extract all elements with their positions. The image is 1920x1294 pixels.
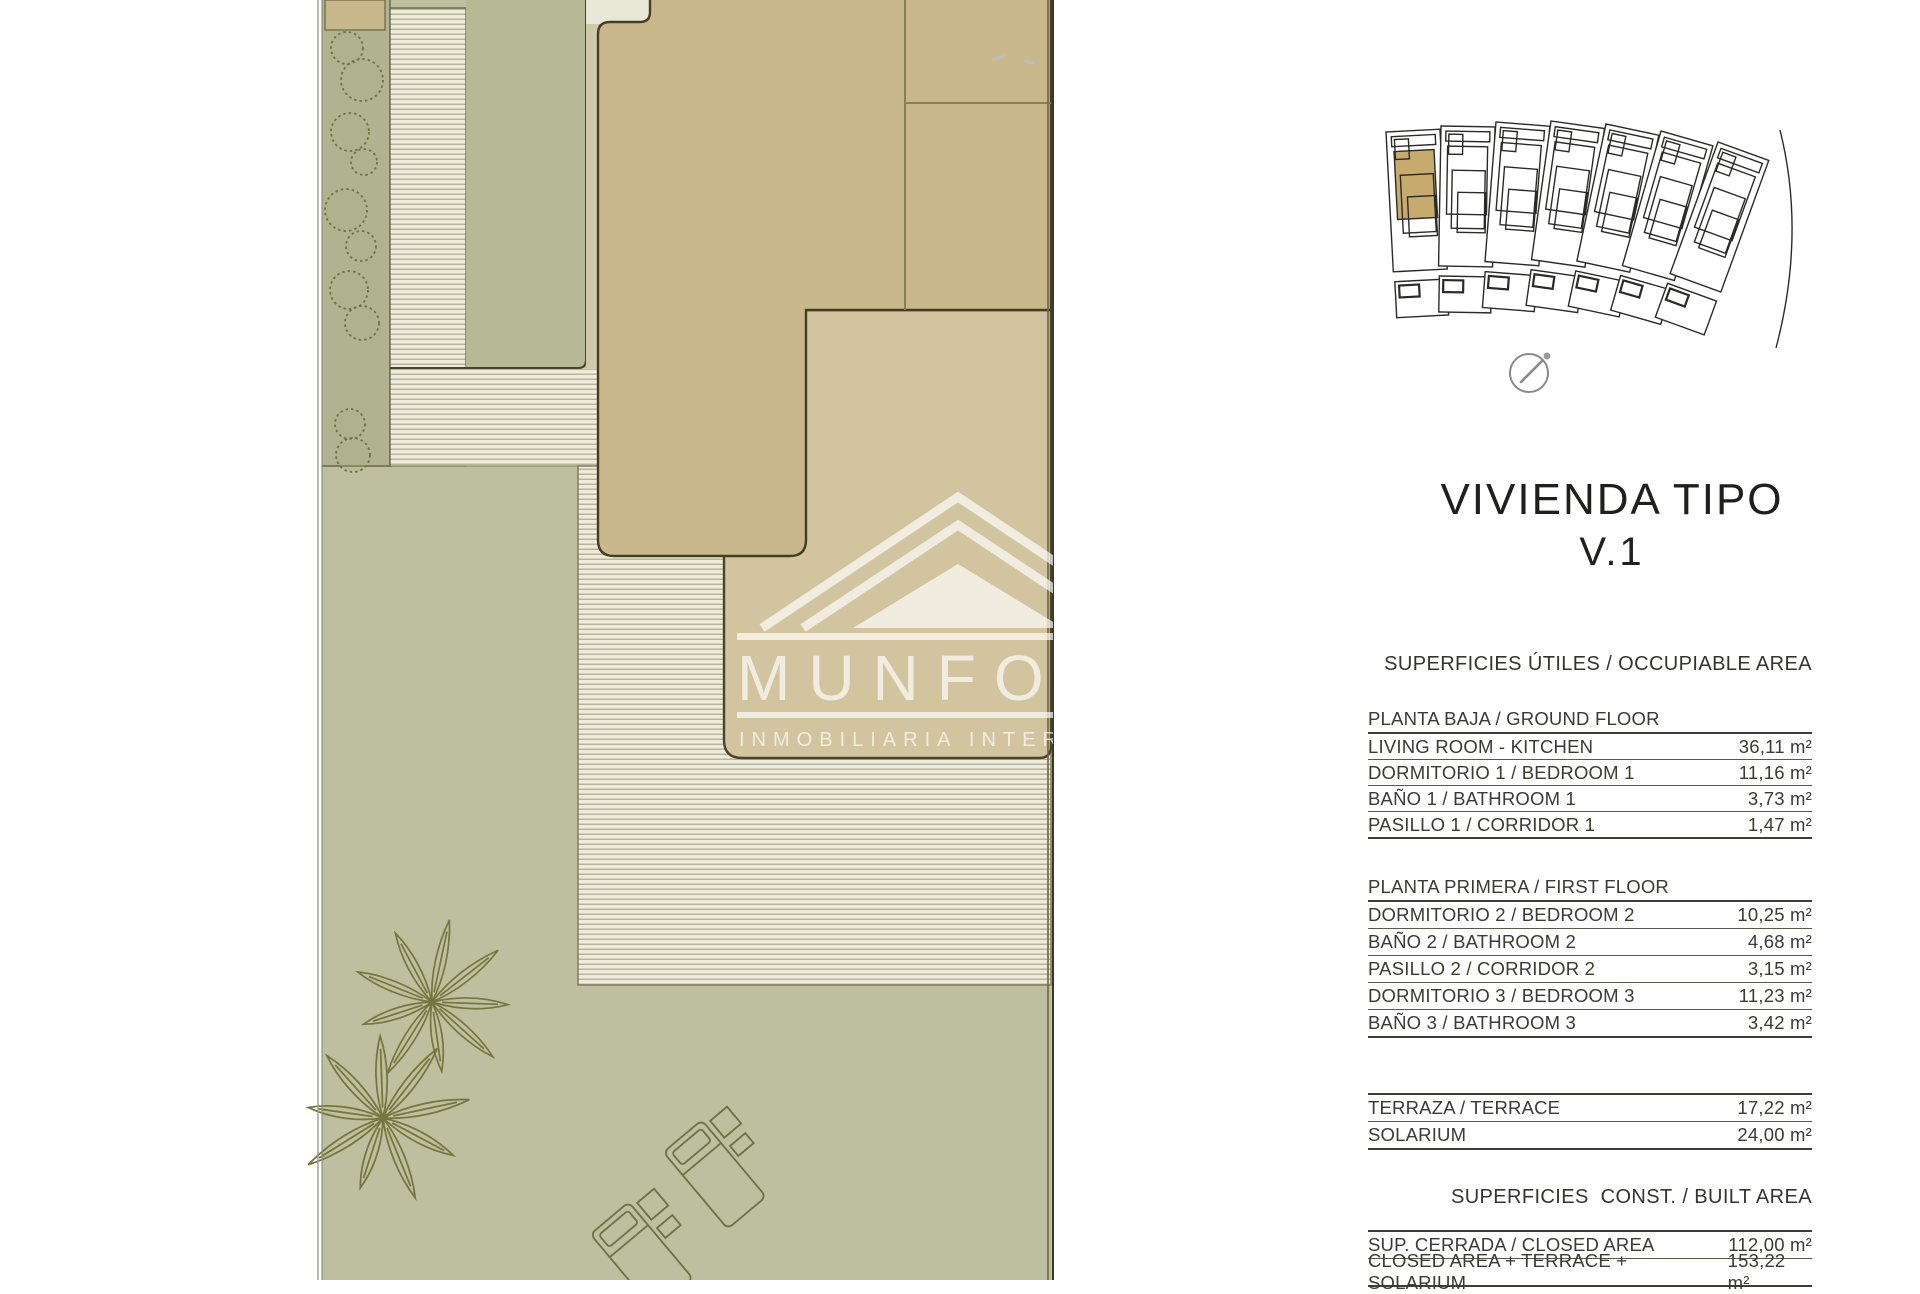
page-title: VIVIENDA TIPO — [1412, 476, 1812, 524]
watermark-brand: MUNFO — [737, 642, 1062, 714]
area-value: 153,22 m² — [1728, 1250, 1812, 1294]
room-label: TERRAZA / TERRACE — [1368, 1097, 1560, 1119]
room-label: BAÑO 3 / BATHROOM 3 — [1368, 1012, 1576, 1034]
sheet-title-block: VIVIENDA TIPO V.1 — [1412, 476, 1812, 575]
table-row: DORMITORIO 3 / BEDROOM 311,23 m² — [1368, 983, 1812, 1010]
room-label: DORMITORIO 2 / BEDROOM 2 — [1368, 904, 1635, 926]
shrub-strip — [322, 0, 390, 472]
compass-icon — [1495, 336, 1575, 398]
room-label: BAÑO 1 / BATHROOM 1 — [1368, 788, 1576, 810]
table-header: PLANTA PRIMERA / FIRST FLOOR — [1368, 874, 1812, 902]
room-label: PASILLO 2 / CORRIDOR 2 — [1368, 958, 1595, 980]
table-row: BAÑO 1 / BATHROOM 13,73 m² — [1368, 786, 1812, 812]
occupiable-area-heading: SUPERFICIES ÚTILES / OCCUPIABLE AREA — [1368, 653, 1812, 676]
table-body: TERRAZA / TERRACE17,22 m²SOLARIUM24,00 m… — [1368, 1095, 1812, 1150]
area-value: 3,73 m² — [1748, 788, 1812, 810]
area-value: 4,68 m² — [1748, 931, 1812, 953]
room-label: BAÑO 2 / BATHROOM 2 — [1368, 931, 1576, 953]
room-label: DORMITORIO 1 / BEDROOM 1 — [1368, 762, 1635, 784]
table-row: PASILLO 1 / CORRIDOR 11,47 m² — [1368, 812, 1812, 839]
watermark-subtitle: INMOBILIARIA INTERNA — [739, 729, 1106, 751]
table-row: SOLARIUM24,00 m² — [1368, 1122, 1812, 1150]
table-body: SUP. CERRADA / CLOSED AREA112,00 m²CLOSE… — [1368, 1232, 1812, 1287]
table-row: PASILLO 2 / CORRIDOR 23,15 m² — [1368, 956, 1812, 983]
table-row: DORMITORIO 2 / BEDROOM 210,25 m² — [1368, 902, 1812, 929]
unit-type-label: V.1 — [1412, 530, 1812, 575]
key-plan — [1380, 106, 1800, 352]
table-row: BAÑO 2 / BATHROOM 24,68 m² — [1368, 929, 1812, 956]
area-value: 3,42 m² — [1748, 1012, 1812, 1034]
area-value: 11,23 m² — [1739, 985, 1812, 1007]
area-value: 17,22 m² — [1737, 1097, 1812, 1119]
table-row: CLOSED AREA + TERRACE + SOLARIUM153,22 m… — [1368, 1259, 1812, 1287]
table-body: DORMITORIO 2 / BEDROOM 210,25 m²BAÑO 2 /… — [1368, 902, 1812, 1038]
table-header: PLANTA BAJA / GROUND FLOOR — [1368, 706, 1812, 734]
built-areas-table: SUP. CERRADA / CLOSED AREA112,00 m²CLOSE… — [1368, 1230, 1812, 1287]
room-label: DORMITORIO 3 / BEDROOM 3 — [1368, 985, 1635, 1007]
room-label: SOLARIUM — [1368, 1124, 1466, 1146]
table-row: LIVING ROOM - KITCHEN36,11 m² — [1368, 734, 1812, 760]
room-label: CLOSED AREA + TERRACE + SOLARIUM — [1368, 1250, 1728, 1294]
built-area-heading: SUPERFICIES CONST. / BUILT AREA — [1368, 1186, 1812, 1209]
table-body: LIVING ROOM - KITCHEN36,11 m²DORMITORIO … — [1368, 734, 1812, 839]
table-row: BAÑO 3 / BATHROOM 33,42 m² — [1368, 1010, 1812, 1038]
table-row: TERRAZA / TERRACE17,22 m² — [1368, 1095, 1812, 1122]
area-value: 24,00 m² — [1737, 1124, 1812, 1146]
area-value: 36,11 m² — [1739, 736, 1812, 758]
room-label: LIVING ROOM - KITCHEN — [1368, 736, 1593, 758]
area-value: 11,16 m² — [1739, 762, 1812, 784]
area-value: 10,25 m² — [1737, 904, 1812, 926]
room-label: PASILLO 1 / CORRIDOR 1 — [1368, 814, 1595, 836]
area-value: 1,47 m² — [1748, 814, 1812, 836]
area-value: 3,15 m² — [1748, 958, 1812, 980]
table-row: DORMITORIO 1 / BEDROOM 111,16 m² — [1368, 760, 1812, 786]
outdoor-areas-table: TERRAZA / TERRACE17,22 m²SOLARIUM24,00 m… — [1368, 1093, 1812, 1150]
ground-floor-table: PLANTA BAJA / GROUND FLOOR LIVING ROOM -… — [1368, 706, 1812, 839]
first-floor-table: PLANTA PRIMERA / FIRST FLOOR DORMITORIO … — [1368, 874, 1812, 1038]
